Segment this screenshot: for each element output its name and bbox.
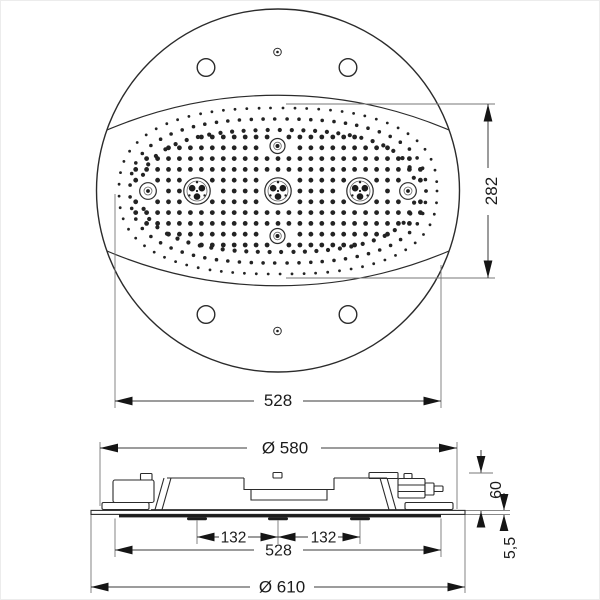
nozzle-dot <box>309 156 314 161</box>
nozzle-dot <box>199 243 204 248</box>
center-recess <box>251 490 327 501</box>
nozzle-dot <box>210 167 215 172</box>
nozzle-dot <box>192 254 196 258</box>
nozzle-dot <box>232 145 237 150</box>
nozzle-dot <box>254 199 259 204</box>
nozzle-dot <box>254 243 259 248</box>
nozzle-dot <box>155 178 160 183</box>
nozzle-dot <box>416 222 420 226</box>
nozzle-dot <box>385 189 390 194</box>
nozzle-dot <box>169 246 173 250</box>
nozzle-dot <box>374 232 379 237</box>
nozzle-dot <box>273 117 277 121</box>
nozzle-dot <box>243 135 248 140</box>
nozzle-dot <box>298 221 303 226</box>
technical-drawing-page: 528 282 <box>0 0 600 600</box>
axis-nozzle-bottom <box>270 229 285 244</box>
nozzle-dot <box>254 210 259 215</box>
dimension-diameter-580: Ø 580 <box>100 439 457 458</box>
nozzle-dot <box>385 178 390 183</box>
nozzle-dot <box>287 243 292 248</box>
nozzle-dot <box>243 178 248 183</box>
nozzle-dot <box>385 167 390 172</box>
nozzle-dot <box>375 118 378 121</box>
nozzle-dot <box>325 130 329 134</box>
nozzle-dot <box>407 221 412 226</box>
nozzle-dot <box>169 132 173 136</box>
nozzle-dot <box>338 269 341 272</box>
nozzle-dot <box>330 210 335 215</box>
nozzle-dot <box>407 156 412 161</box>
nozzle-dot <box>185 138 189 142</box>
dimension-plate-thickness: 5,5 <box>500 493 519 559</box>
nozzle-dot <box>361 242 365 246</box>
nozzle-dot <box>177 156 182 161</box>
nozzle-dot <box>222 109 225 112</box>
nozzle-dot <box>176 118 179 121</box>
nozzle-dot <box>155 199 160 204</box>
nozzle-dot <box>188 210 193 215</box>
nozzle-dot <box>199 112 202 115</box>
nozzle-dot <box>197 266 200 269</box>
nozzle-dot <box>232 135 237 140</box>
nozzle-dot <box>243 232 248 237</box>
nozzle-dot <box>341 156 346 161</box>
nozzle-dot <box>341 221 346 226</box>
nozzle-dot <box>232 210 237 215</box>
nozzle-dot <box>265 243 270 248</box>
nozzle-dot <box>261 117 265 121</box>
nozzle-dot <box>424 148 427 151</box>
nozzle-dot <box>177 189 182 194</box>
nozzle-dot <box>414 242 417 245</box>
nozzle-dot <box>309 145 314 150</box>
nozzle-dot <box>363 221 368 226</box>
nozzle-dot <box>422 233 425 236</box>
nozzle-dot <box>144 210 149 215</box>
nozzle-dot <box>258 107 261 110</box>
nozzle-dot <box>232 221 237 226</box>
nozzle-dot <box>199 135 204 140</box>
nozzle-dot <box>174 260 177 263</box>
nozzle-dot <box>330 156 335 161</box>
nozzle-dot <box>144 156 149 161</box>
nozzle-dot <box>415 156 419 160</box>
nozzle-dot <box>418 210 423 215</box>
nozzle-dot <box>210 156 215 161</box>
nozzle-dot <box>134 161 138 165</box>
nozzle-dot <box>385 221 390 226</box>
overall-diameter-label: Ø 610 <box>259 578 305 597</box>
side-width-label: 528 <box>265 543 292 560</box>
nozzle-dot <box>374 199 379 204</box>
nozzle-dot <box>396 156 401 161</box>
nozzle-dot <box>399 140 403 144</box>
nozzle-dot <box>210 221 215 226</box>
nozzle-dot <box>188 156 193 161</box>
screw-hole-bottom-right <box>339 306 357 324</box>
nozzle-dot <box>285 117 289 121</box>
nozzle-dot <box>374 221 379 226</box>
nozzle-dot <box>429 223 432 226</box>
nozzle-dot <box>386 122 389 125</box>
nozzle-dot <box>341 110 344 113</box>
nozzle-dot <box>185 264 188 267</box>
spray-face-top-edge <box>107 95 449 130</box>
nozzle-dot <box>177 221 182 226</box>
connection-step <box>425 483 434 495</box>
nozzle-dot <box>199 221 204 226</box>
nozzle-dot <box>210 145 215 150</box>
nozzle-dot <box>359 136 363 140</box>
nozzle-dot <box>199 156 204 161</box>
nozzle-dot <box>232 156 237 161</box>
nozzle-dot <box>188 145 193 150</box>
nozzle-dot <box>287 210 292 215</box>
nozzle-dot <box>143 244 146 247</box>
nozzle-dot <box>147 217 151 221</box>
nozzle-dot <box>166 232 171 237</box>
nozzle-dot <box>177 199 182 204</box>
nozzle-dot <box>355 255 359 259</box>
left-connector-box <box>113 480 154 503</box>
nozzle-dot <box>291 273 294 276</box>
spray-cluster-nozzle-right <box>347 178 373 204</box>
nozzle-dot <box>254 221 259 226</box>
nozzle-dot <box>243 156 248 161</box>
nozzle-dot <box>309 178 314 183</box>
nozzle-dot <box>341 210 346 215</box>
nozzle-dot <box>210 178 215 183</box>
nozzle-dot <box>344 121 348 125</box>
nozzle-dot <box>278 128 282 132</box>
nozzle-dot <box>244 249 248 253</box>
nozzle-dot <box>341 167 346 172</box>
nozzle-dot <box>133 199 138 204</box>
nozzle-dot <box>250 118 254 122</box>
nozzle-dot <box>243 189 248 194</box>
nozzle-dot <box>234 108 237 111</box>
nozzle-dot <box>209 269 212 272</box>
axis-nozzle-top <box>270 139 285 154</box>
nozzle-dot <box>408 231 412 235</box>
nozzle-dot <box>330 232 335 237</box>
nozzle-dot <box>374 178 379 183</box>
nozzle-dot <box>243 221 248 226</box>
nozzle-dot <box>119 171 122 174</box>
nozzle-dot <box>177 232 182 237</box>
nozzle-dot <box>128 195 132 199</box>
nozzle-dot <box>175 237 179 241</box>
nozzle-dot <box>243 167 248 172</box>
nozzle-dot <box>374 145 379 150</box>
nozzle-dot <box>188 115 191 118</box>
nozzle-dot <box>255 272 258 275</box>
nozzle-dot <box>435 201 438 204</box>
nozzle-dot <box>141 152 145 156</box>
nozzle-dot <box>314 249 318 253</box>
nozzle-dot <box>177 210 182 215</box>
nozzle-dot <box>352 156 357 161</box>
nozzle-dot <box>261 261 265 265</box>
nozzle-dot <box>297 117 301 121</box>
nozzle-dot <box>309 189 314 194</box>
nozzle-dot <box>309 261 313 265</box>
nozzle-dot <box>399 238 403 242</box>
nozzle-dot <box>371 139 375 143</box>
nozzle-dot <box>242 129 246 133</box>
nozzle-dot <box>352 210 357 215</box>
nozzle-dot <box>192 125 196 129</box>
nozzle-dot <box>134 217 138 221</box>
nozzle-dot <box>155 127 158 130</box>
nozzle-dot <box>314 272 317 275</box>
nozzle-dot <box>330 199 335 204</box>
nozzle-dot <box>303 250 307 254</box>
nozzle-dot <box>232 178 237 183</box>
nozzle-dot <box>155 225 159 229</box>
nozzle-dot <box>297 261 301 265</box>
nozzle-dot <box>159 137 163 141</box>
cluster-bump-right <box>350 517 370 520</box>
nozzle-dot <box>352 221 357 226</box>
nozzle-dot <box>363 156 368 161</box>
nozzle-dot <box>374 167 379 172</box>
nozzle-dot <box>344 257 348 261</box>
dimension-overall-diameter: Ø 610 <box>91 578 465 597</box>
side-nozzle-left <box>140 183 157 200</box>
nozzle-dot <box>408 147 412 151</box>
shower-head-technical-drawing: 528 282 <box>1 1 599 599</box>
nozzle-dot <box>265 210 270 215</box>
nozzle-dot <box>269 107 272 110</box>
nozzle-dot <box>123 160 126 163</box>
nozzle-dot <box>330 189 335 194</box>
nozzle-dot <box>256 250 260 254</box>
nozzle-dot <box>232 167 237 172</box>
nozzle-dot <box>352 112 355 115</box>
right-foot <box>405 503 453 510</box>
screw-hole-bottom-left <box>197 306 215 324</box>
nozzle-dot <box>290 128 294 132</box>
nozzle-dot <box>146 162 150 166</box>
nozzle-dot <box>232 232 237 237</box>
nozzle-dot <box>221 156 226 161</box>
nozzle-dot <box>273 261 277 265</box>
nozzle-dot <box>341 178 346 183</box>
nozzle-dot <box>309 167 314 172</box>
nozzle-dot <box>276 221 281 226</box>
nozzle-dot <box>394 254 397 257</box>
nozzle-dot <box>319 167 324 172</box>
nozzle-dot <box>416 139 419 142</box>
nozzle-dot <box>348 133 352 137</box>
nozzle-dot <box>319 135 324 140</box>
nozzle-dot <box>210 210 215 215</box>
dimension-arrows <box>477 456 486 528</box>
nozzle-dot <box>267 273 270 276</box>
nozzle-dot <box>188 167 193 172</box>
nozzle-dot <box>396 167 401 172</box>
nozzle-dot <box>338 246 342 250</box>
nozzle-dot <box>186 240 190 244</box>
nozzle-dot <box>238 118 242 122</box>
nozzle-dot <box>305 107 308 110</box>
nozzle-dot <box>163 256 166 259</box>
nozzle-dot <box>329 109 332 112</box>
nozzle-dot <box>250 261 254 265</box>
nozzle-dot <box>309 199 314 204</box>
nozzle-dot <box>174 142 178 146</box>
nozzle-dot <box>298 232 303 237</box>
nozzle-dot <box>130 172 134 176</box>
nozzle-dot <box>155 221 160 226</box>
nozzle-dot <box>230 130 234 134</box>
base-plate <box>91 510 465 514</box>
nozzle-dot <box>309 118 313 122</box>
nozzle-dot <box>396 210 401 215</box>
nozzle-dot <box>254 135 259 140</box>
nozzle-dot <box>352 145 357 150</box>
nozzle-dot <box>363 232 368 237</box>
nozzle-dot <box>363 167 368 172</box>
nozzle-dot <box>396 178 401 183</box>
nozzle-dot <box>133 178 138 183</box>
nozzle-dot <box>199 145 204 150</box>
nozzle-dot <box>133 167 138 172</box>
nozzle-dot <box>245 107 248 110</box>
nozzle-dot <box>287 156 292 161</box>
nozzle-dot <box>254 232 259 237</box>
connection-nipple <box>434 486 443 492</box>
nozzle-dot <box>298 178 303 183</box>
nozzle-dot <box>298 156 303 161</box>
nozzle-dot <box>319 178 324 183</box>
nozzle-dot <box>396 221 401 226</box>
nozzle-dot <box>418 167 423 172</box>
spray-face-bottom-edge <box>107 251 449 286</box>
nozzle-dot <box>188 232 193 237</box>
nozzle-dot <box>291 250 295 254</box>
nozzle-dot <box>210 135 215 140</box>
nozzle-dot <box>424 201 428 205</box>
nozzle-dot <box>372 238 376 242</box>
nozzle-dot <box>155 167 160 172</box>
nozzle-dot <box>128 150 131 153</box>
valve-top-tab <box>404 474 412 479</box>
nozzle-dot <box>118 195 121 198</box>
nozzle-dot <box>378 248 382 252</box>
nozzle-dot <box>238 260 242 264</box>
nozzle-dot <box>166 189 171 194</box>
nozzle-dot <box>159 241 163 245</box>
dimension-side-width: 528 <box>115 543 441 560</box>
nozzle-dot <box>319 199 324 204</box>
nozzle-dot <box>341 232 346 237</box>
nozzle-dot <box>203 256 207 260</box>
nozzle-dot <box>180 128 184 132</box>
nozzle-dot <box>177 145 182 150</box>
right-spacing-label: 132 <box>311 530 337 547</box>
nozzle-dot <box>326 271 329 274</box>
nozzle-dot <box>366 126 370 130</box>
nozzle-dot <box>155 210 160 215</box>
nozzle-dot <box>350 268 353 271</box>
nozzle-dot <box>282 107 285 110</box>
nozzle-dot <box>319 145 324 150</box>
nozzle-dot <box>145 134 148 137</box>
nozzle-dot <box>177 167 182 172</box>
nozzle-dot <box>136 141 139 144</box>
nozzle-dot <box>363 145 368 150</box>
nozzle-dot <box>199 167 204 172</box>
nozzle-dot <box>309 135 314 140</box>
nozzle-dot <box>372 262 375 265</box>
nozzle-dot <box>128 183 132 187</box>
nozzle-dot <box>418 199 423 204</box>
nozzle-dot <box>279 250 283 254</box>
nozzle-dot <box>385 199 390 204</box>
nozzle-dot <box>424 189 428 193</box>
screw-hole-top-left <box>197 59 215 77</box>
nozzle-dot <box>177 178 182 183</box>
spray-face-edge <box>119 514 441 517</box>
nozzle-dot <box>309 221 314 226</box>
center-top-tab <box>273 473 282 479</box>
pin-hole-bottom <box>274 327 282 335</box>
nozzle-dot <box>149 144 153 148</box>
nozzle-dot <box>332 120 336 124</box>
nozzle-dot <box>332 259 336 263</box>
nozzle-dot <box>233 249 237 253</box>
nozzle-dot <box>142 207 146 211</box>
nozzle-dot <box>320 119 324 123</box>
nozzle-dot <box>166 156 171 161</box>
nozzle-dot <box>144 167 149 172</box>
nozzle-dot <box>385 232 390 237</box>
nozzle-dot <box>221 135 226 140</box>
nozzle-dot <box>287 167 292 172</box>
nozzle-dot <box>203 122 207 126</box>
nozzle-dot <box>436 190 439 193</box>
nozzle-dot <box>268 250 272 254</box>
nozzle-dot <box>215 121 219 125</box>
nozzle-dot <box>188 221 193 226</box>
nozzle-dot <box>199 210 204 215</box>
nozzle-dot <box>221 199 226 204</box>
nozzle-dot <box>232 243 237 248</box>
nozzle-dot <box>243 243 248 248</box>
nozzle-dot <box>180 250 184 254</box>
nozzle-dot <box>424 178 428 182</box>
nozzle-dot <box>330 221 335 226</box>
nozzle-dot <box>231 271 234 274</box>
nozzle-dot <box>166 167 171 172</box>
nozzle-dot <box>385 156 390 161</box>
nozzle-dot <box>130 207 134 211</box>
nozzle-dot <box>243 210 248 215</box>
nozzle-dot <box>402 221 406 225</box>
nozzle-dot <box>309 243 314 248</box>
nozzle-dot <box>412 176 416 180</box>
nozzle-dot <box>412 201 416 205</box>
nozzle-dot <box>199 232 204 237</box>
nozzle-dot <box>298 167 303 172</box>
nozzle-dot <box>210 232 215 237</box>
nozzle-dot <box>435 180 438 183</box>
nozzle-dot <box>221 178 226 183</box>
nozzle-dot <box>341 243 346 248</box>
